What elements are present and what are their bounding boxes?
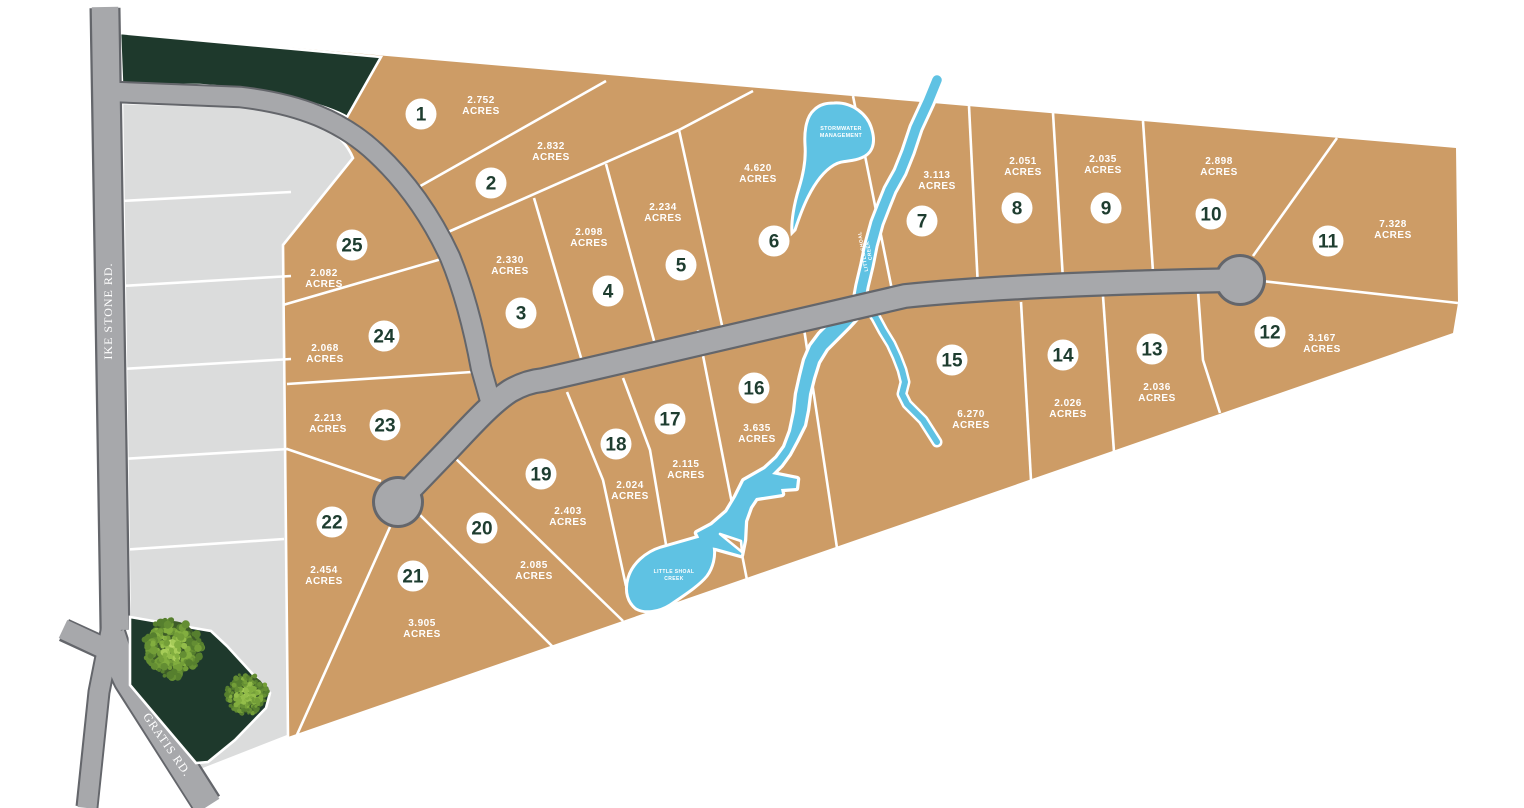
svg-text:11: 11 xyxy=(1318,232,1339,253)
svg-text:10: 10 xyxy=(1200,205,1221,226)
svg-text:21: 21 xyxy=(402,567,424,588)
svg-text:3.113ACRES: 3.113ACRES xyxy=(918,170,956,192)
svg-text:8: 8 xyxy=(1012,199,1023,220)
svg-text:IKE STONE RD.: IKE STONE RD. xyxy=(101,262,115,359)
svg-text:MANAGEMENT: MANAGEMENT xyxy=(820,133,863,139)
svg-text:17: 17 xyxy=(659,410,680,431)
svg-text:2.024ACRES: 2.024ACRES xyxy=(611,480,649,502)
svg-text:2.098ACRES: 2.098ACRES xyxy=(570,227,608,249)
svg-text:CREEK: CREEK xyxy=(664,576,684,582)
svg-text:2.085ACRES: 2.085ACRES xyxy=(515,560,553,582)
svg-text:3.167ACRES: 3.167ACRES xyxy=(1303,333,1341,355)
svg-text:2.752ACRES: 2.752ACRES xyxy=(462,95,500,117)
svg-text:2.068ACRES: 2.068ACRES xyxy=(306,343,344,365)
svg-text:15: 15 xyxy=(941,351,963,372)
svg-text:4.620ACRES: 4.620ACRES xyxy=(739,163,777,185)
svg-text:7: 7 xyxy=(917,212,928,233)
svg-text:3: 3 xyxy=(516,304,527,325)
svg-text:18: 18 xyxy=(605,435,626,456)
svg-text:3.905ACRES: 3.905ACRES xyxy=(403,618,441,640)
svg-text:2.234ACRES: 2.234ACRES xyxy=(644,202,682,224)
svg-text:24: 24 xyxy=(373,327,395,348)
svg-text:6.270ACRES: 6.270ACRES xyxy=(952,409,990,431)
svg-text:STORMWATER: STORMWATER xyxy=(820,126,861,132)
svg-text:25: 25 xyxy=(341,236,363,257)
svg-text:4: 4 xyxy=(603,282,614,303)
svg-text:19: 19 xyxy=(530,465,551,486)
svg-text:2: 2 xyxy=(486,174,497,195)
svg-text:2.026ACRES: 2.026ACRES xyxy=(1049,398,1087,420)
svg-text:1: 1 xyxy=(416,105,427,126)
svg-text:2.115ACRES: 2.115ACRES xyxy=(667,459,705,481)
svg-text:16: 16 xyxy=(743,379,764,400)
svg-text:2.898ACRES: 2.898ACRES xyxy=(1200,156,1238,178)
svg-text:2.403ACRES: 2.403ACRES xyxy=(549,506,587,528)
svg-text:7.328ACRES: 7.328ACRES xyxy=(1374,219,1412,241)
svg-text:20: 20 xyxy=(471,519,492,540)
svg-text:2.035ACRES: 2.035ACRES xyxy=(1084,154,1122,176)
svg-text:14: 14 xyxy=(1052,346,1074,367)
svg-text:13: 13 xyxy=(1141,340,1162,361)
svg-text:23: 23 xyxy=(374,416,395,437)
svg-text:2.330ACRES: 2.330ACRES xyxy=(491,255,529,277)
svg-text:2.051ACRES: 2.051ACRES xyxy=(1004,156,1042,178)
svg-text:9: 9 xyxy=(1101,199,1112,220)
svg-text:2.213ACRES: 2.213ACRES xyxy=(309,413,347,435)
svg-text:LITTLE SHOAL: LITTLE SHOAL xyxy=(654,569,695,575)
svg-text:2.036ACRES: 2.036ACRES xyxy=(1138,382,1176,404)
svg-text:2.454ACRES: 2.454ACRES xyxy=(305,565,343,587)
svg-text:2.832ACRES: 2.832ACRES xyxy=(532,141,570,163)
svg-text:3.635ACRES: 3.635ACRES xyxy=(738,423,776,445)
svg-text:22: 22 xyxy=(321,513,342,534)
svg-text:5: 5 xyxy=(676,256,687,277)
svg-text:6: 6 xyxy=(769,232,780,253)
svg-text:12: 12 xyxy=(1259,323,1280,344)
svg-text:2.082ACRES: 2.082ACRES xyxy=(305,268,343,290)
